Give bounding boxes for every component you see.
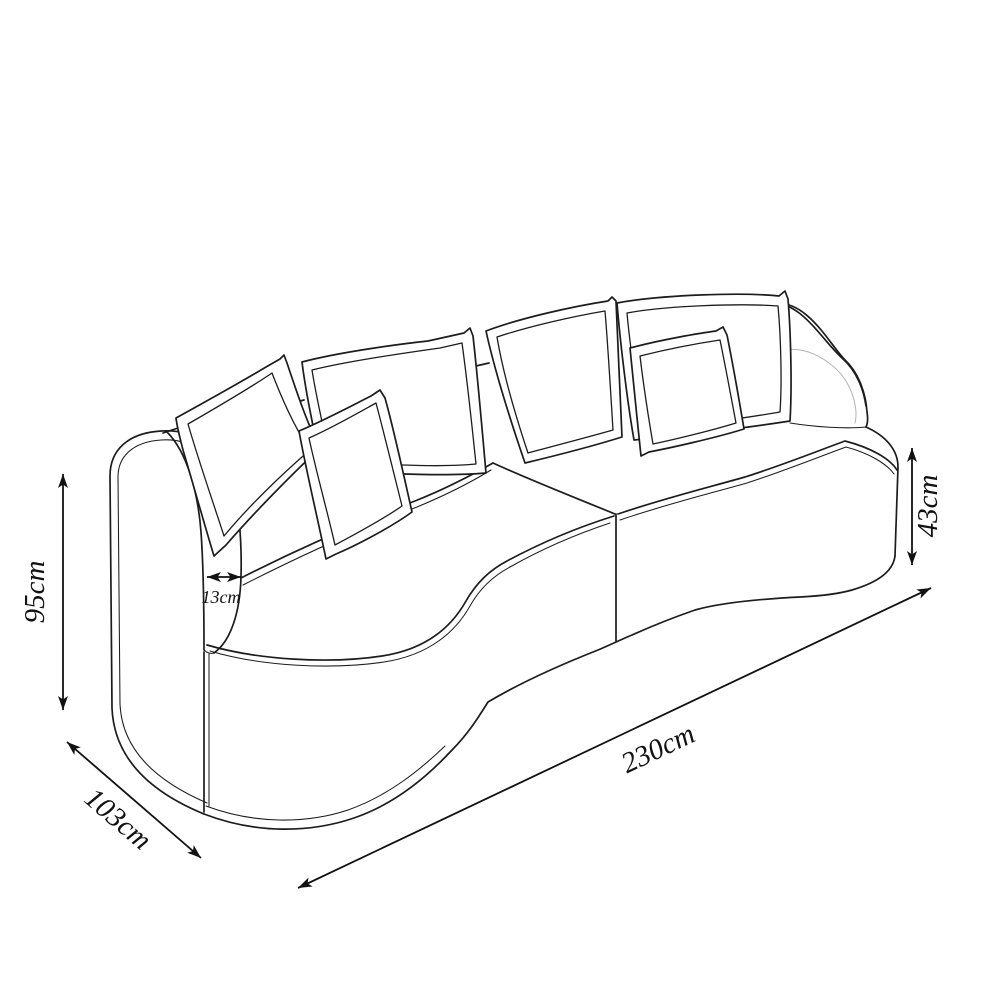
seat-piping-right bbox=[618, 441, 897, 514]
height-label: 95cm bbox=[19, 561, 51, 624]
depth-label: 103cm bbox=[78, 782, 157, 857]
dimension-seat-height: 43cm bbox=[912, 448, 944, 565]
plinth-bottom-inner bbox=[206, 746, 445, 820]
width-label: 230cm bbox=[616, 718, 700, 780]
seat-piping-right-inner bbox=[620, 447, 894, 520]
dimension-annotations: 95cm 103cm 230cm 43cm 13cm bbox=[19, 448, 944, 888]
base-edge-left-inner bbox=[210, 523, 610, 666]
sofa-line-art-canvas: 95cm 103cm 230cm 43cm 13cm bbox=[0, 0, 1000, 1000]
seat-split-line bbox=[493, 463, 615, 514]
dimension-armrest: 13cm bbox=[202, 577, 242, 607]
right-arm-seat-junction bbox=[790, 423, 866, 428]
seat-height-label: 43cm bbox=[912, 475, 944, 538]
dimension-width: 230cm bbox=[298, 588, 931, 888]
base-edge-left bbox=[207, 516, 614, 660]
dimension-depth: 103cm bbox=[67, 742, 201, 858]
width-arrow bbox=[298, 588, 931, 888]
dimension-height: 95cm bbox=[19, 474, 63, 710]
sofa-dimension-diagram: 95cm 103cm 230cm 43cm 13cm bbox=[0, 0, 1000, 1000]
right-end-outline bbox=[866, 427, 898, 556]
armrest-label: 13cm bbox=[202, 587, 241, 607]
plinth-bottom-edge bbox=[204, 556, 895, 829]
pillow-group bbox=[176, 291, 791, 559]
